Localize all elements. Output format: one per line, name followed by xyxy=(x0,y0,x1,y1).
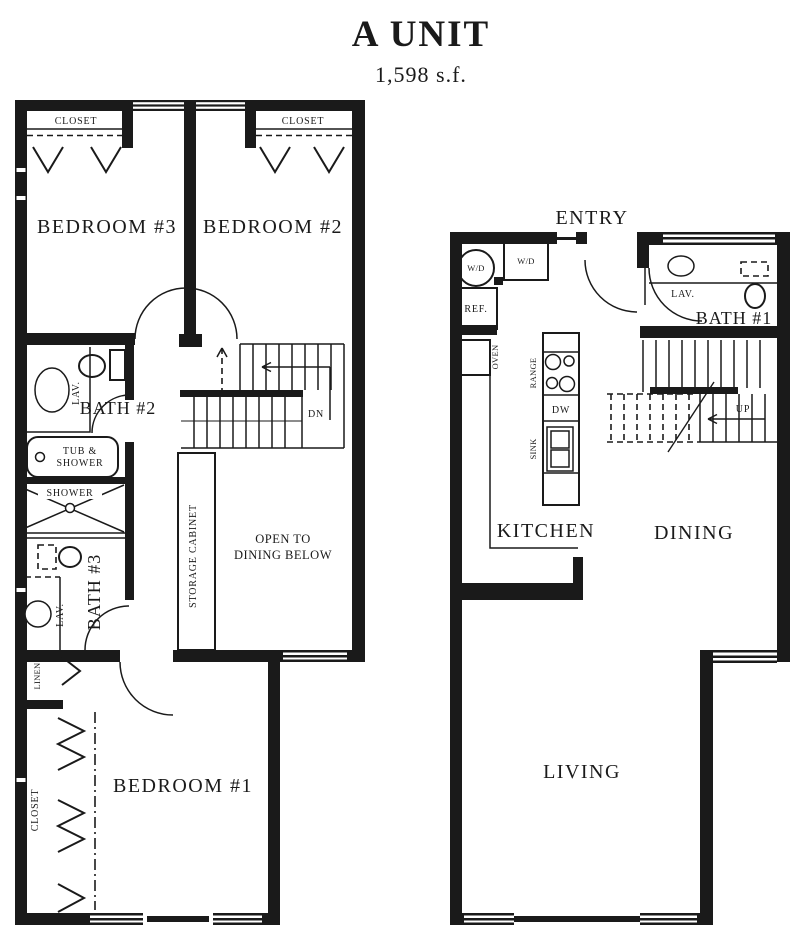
window-living-south xyxy=(464,913,697,925)
dining-label: DINING xyxy=(654,522,734,544)
wd-right-label: W/D xyxy=(517,256,534,266)
wd-left-label: W/D xyxy=(467,263,484,273)
window-open-below xyxy=(283,650,347,662)
bedroom2-closet: CLOSET xyxy=(256,116,352,172)
toilet-icon xyxy=(59,547,81,567)
bath3-label: BATH #3 xyxy=(84,554,104,631)
sink-icon xyxy=(35,368,69,412)
living-label: LIVING xyxy=(543,761,621,783)
entry-label: ENTRY xyxy=(555,207,628,229)
window-top-right xyxy=(196,100,246,111)
window-top-left xyxy=(133,100,184,111)
open-to-dining-line2: DINING BELOW xyxy=(234,548,332,562)
dishwasher-label: DW xyxy=(552,405,570,416)
stairs-up: UP xyxy=(607,340,777,452)
bifold-door-icon xyxy=(260,147,290,172)
bifold-door-icon xyxy=(58,718,84,770)
medicine-cabinet-icon xyxy=(38,545,56,569)
ref-label: REF. xyxy=(464,304,487,315)
stairs-up-label: UP xyxy=(736,404,750,415)
sink-icon xyxy=(25,601,51,627)
sink-label: SINK xyxy=(528,438,538,460)
window-dining-east xyxy=(713,650,777,663)
laundry-area: W/D W/D REF. OVEN xyxy=(455,241,548,375)
toilet-icon xyxy=(745,284,765,308)
tub-label-line2: SHOWER xyxy=(56,458,103,469)
bifold-door-icon xyxy=(314,147,344,172)
lower-floor-plan: ENTRY xyxy=(450,207,790,925)
medicine-cabinet-icon xyxy=(741,262,768,276)
bedroom3-door-arc-icon xyxy=(135,288,186,339)
storage-cabinet-label: STORAGE CABINET xyxy=(188,504,199,608)
stair-risers-dashed xyxy=(611,394,689,442)
bedroom2-closet-label: CLOSET xyxy=(282,116,325,127)
bifold-door-icon xyxy=(58,800,84,852)
floorplan-page: A UNIT 1,598 s.f. xyxy=(0,0,800,932)
bath1-lav-label: LAV. xyxy=(671,289,695,300)
tub-icon: TUB & SHOWER xyxy=(27,437,118,477)
toilet-icon xyxy=(79,355,105,377)
bath2-label: BATH #2 xyxy=(80,398,157,418)
stair-direction-arrow-icon xyxy=(708,415,765,424)
kitchen-label: KITCHEN xyxy=(497,520,595,542)
shower-stall-icon: SHOWER xyxy=(15,485,125,538)
shower-label: SHOWER xyxy=(46,488,93,499)
bedroom3-closet: CLOSET xyxy=(27,116,122,172)
bifold-door-icon xyxy=(33,147,63,172)
stair-landing xyxy=(650,387,738,394)
bath1: LAV. BATH #1 xyxy=(645,256,777,328)
kitchen: RANGE DW SINK KITCHEN xyxy=(490,333,595,548)
lower-walls xyxy=(450,232,790,925)
bath3: LAV. BATH #3 xyxy=(15,545,129,650)
bedroom2-label: BEDROOM #2 xyxy=(203,216,343,238)
bedroom1-door-arc-icon xyxy=(120,662,173,715)
bath2: LAV. BATH #2 TUB & SHOWER SHOWER xyxy=(15,347,156,538)
range-label: RANGE xyxy=(528,358,538,389)
stair-risers xyxy=(194,397,285,448)
tub-label-line1: TUB & xyxy=(63,446,97,457)
window-bath1-north xyxy=(663,232,775,245)
bifold-door-icon xyxy=(91,147,121,172)
stair-risers xyxy=(656,340,760,388)
bedroom1-label: BEDROOM #1 xyxy=(113,775,253,797)
floorplan-drawing: A UNIT 1,598 s.f. xyxy=(0,0,800,932)
bath1-label: BATH #1 xyxy=(696,308,773,328)
unit-title: A UNIT xyxy=(352,14,490,55)
bedroom3-closet-label: CLOSET xyxy=(55,116,98,127)
stairs-down-label: DN xyxy=(308,409,324,420)
open-to-dining-line1: OPEN TO xyxy=(255,532,310,546)
bedroom1: CLOSET BEDROOM #1 xyxy=(30,662,253,912)
window-bedroom1-south xyxy=(90,913,262,925)
bifold-door-icon xyxy=(58,884,84,912)
bedroom1-closet-label: CLOSET xyxy=(30,789,41,832)
bath3-lav-label: LAV. xyxy=(55,603,66,627)
linen-label: LINEN xyxy=(32,663,42,690)
bedroom3-label: BEDROOM #3 xyxy=(37,216,177,238)
unit-area: 1,598 s.f. xyxy=(375,62,467,87)
sink-icon xyxy=(668,256,694,276)
stair-landing xyxy=(180,390,303,397)
entry-door-arc-icon xyxy=(585,260,637,312)
toilet-tank-icon xyxy=(110,350,125,380)
upper-floor-plan: CLOSET CLOSET BEDROOM #3 BEDROOM #2 LAV.… xyxy=(15,100,365,925)
oven-label: OVEN xyxy=(490,345,500,370)
stairs-down: DN xyxy=(180,344,344,448)
